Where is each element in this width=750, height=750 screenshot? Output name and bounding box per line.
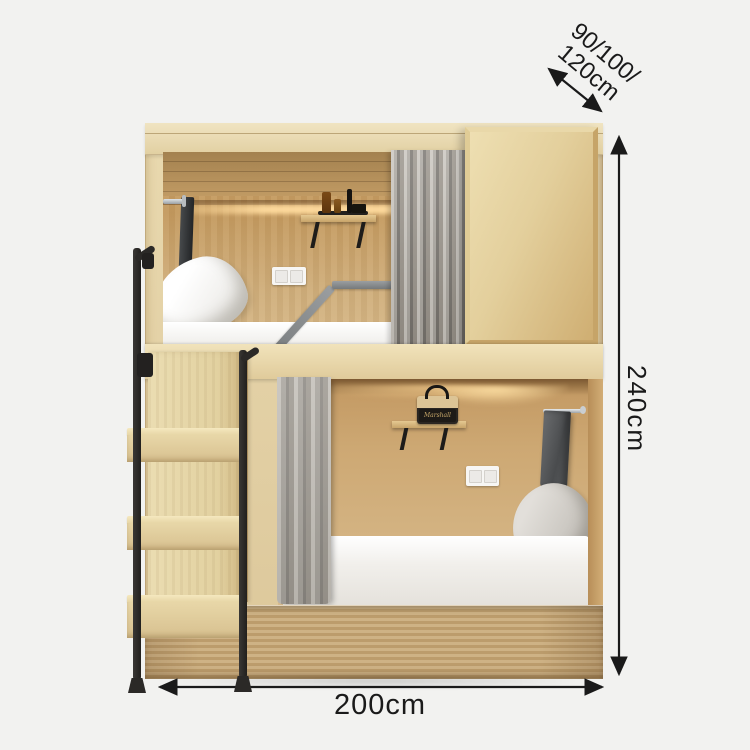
amber-bottle: [322, 192, 331, 213]
door-panel-grain: [470, 132, 593, 340]
amber-bottle-small: [334, 199, 341, 213]
stair-riser-2: [127, 523, 244, 550]
width-dimension-label: 200cm: [300, 689, 460, 722]
stair-riser-1: [127, 435, 244, 462]
height-dimension-label: 240cm: [621, 365, 652, 453]
speaker-handle: [425, 385, 449, 399]
shelf-bracket: [440, 428, 449, 450]
stair-tread-2: [127, 516, 244, 523]
depth-dimension-label: 90/100/ 120cm: [538, 8, 656, 118]
handrail-left: [133, 248, 141, 680]
speaker-brand: Marshall: [424, 412, 451, 419]
bluetooth-speaker: Marshall: [417, 396, 458, 424]
upper-wall-socket: [272, 267, 306, 285]
lower-right-wall: [588, 379, 603, 608]
handrail-bracket: [137, 353, 153, 377]
speaker-grille: Marshall: [419, 409, 456, 422]
socket-outlet: [484, 470, 497, 483]
stair-tread-3: [127, 595, 244, 602]
stair-stringer: [148, 352, 248, 602]
shelf-bracket: [400, 428, 409, 450]
towel-rod-cap: [580, 406, 586, 414]
lower-wall-socket: [466, 466, 499, 486]
handrail-right: [239, 350, 247, 678]
upper-shelf: [301, 215, 376, 222]
wall-hook: [182, 195, 186, 207]
handrail-bracket: [142, 253, 154, 269]
socket-switch: [469, 470, 482, 483]
sliding-cabinet-door: [465, 127, 598, 345]
lower-curtain: [277, 377, 331, 604]
black-box: [352, 204, 366, 213]
floor-shadow: [150, 675, 602, 687]
stair-tread-1: [127, 428, 244, 435]
socket-switch: [275, 270, 288, 283]
handrail-left-foot: [128, 678, 146, 693]
hanging-towel: [540, 410, 571, 489]
product-photo: Marshall: [0, 0, 750, 750]
stair-riser-3: [127, 602, 244, 638]
socket-outlet: [290, 270, 303, 283]
upper-curtain: [391, 150, 467, 351]
